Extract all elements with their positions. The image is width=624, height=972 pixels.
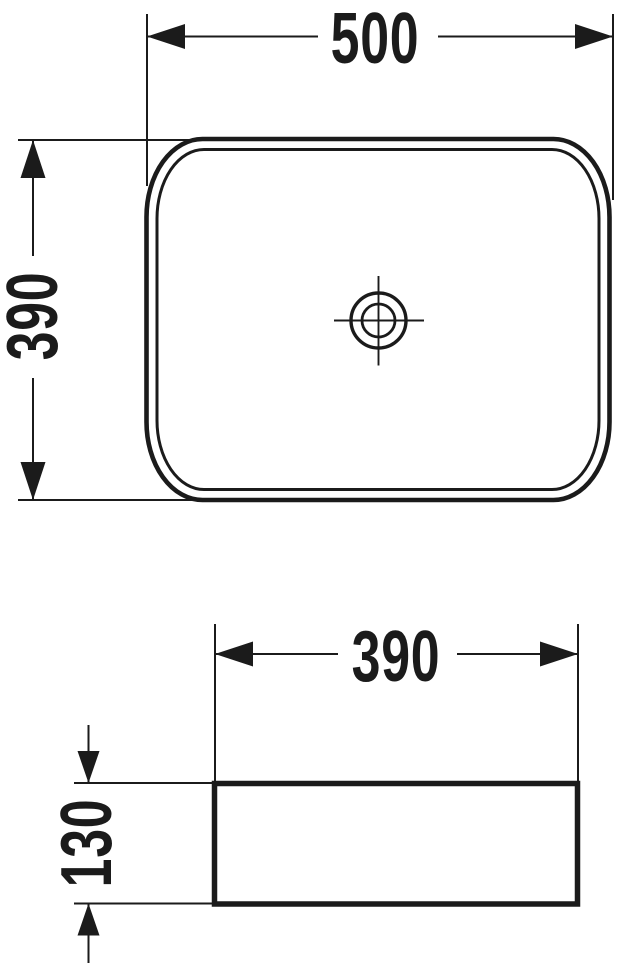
- dimension-value-top-width: 500: [331, 3, 420, 75]
- arrowhead-left: [215, 642, 253, 667]
- arrowhead-right: [575, 24, 613, 49]
- front-view: [215, 784, 578, 905]
- dimension-value-front-width: 390: [352, 621, 441, 693]
- dimension-value-front-height: 130: [51, 799, 123, 888]
- top-view: [147, 139, 610, 500]
- drawing-sheet: 500 390 390 130: [0, 0, 624, 972]
- arrowhead-up: [21, 140, 46, 178]
- basin-elevation-outline: [215, 784, 578, 905]
- dimension-value-top-depth: 390: [0, 272, 69, 361]
- arrowhead-left: [147, 24, 185, 49]
- arrowhead-right: [540, 642, 578, 667]
- arrowhead-down: [78, 751, 100, 783]
- arrowhead-down: [21, 462, 46, 500]
- arrowhead-up: [78, 904, 100, 936]
- drain-crosshair-symbol: [334, 276, 424, 366]
